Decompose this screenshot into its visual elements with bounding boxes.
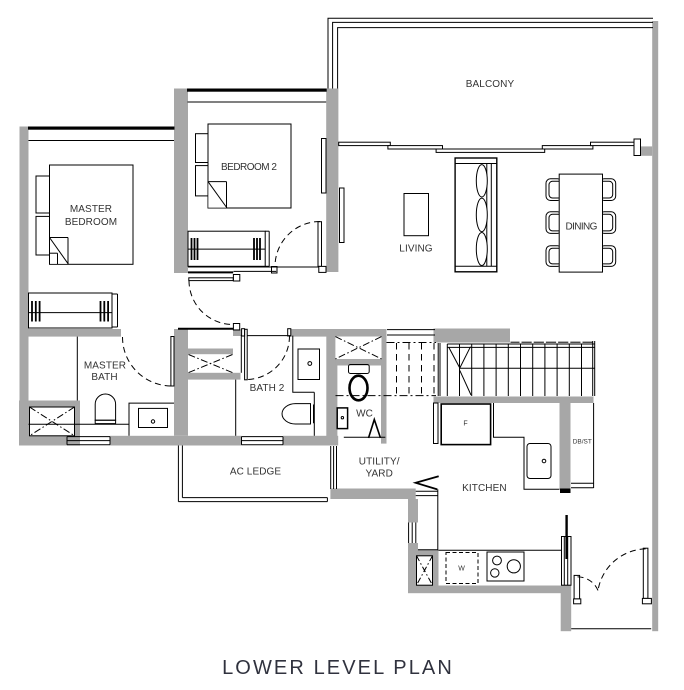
svg-text:UTILITY/: UTILITY/ [359,457,400,468]
svg-text:BALCONY: BALCONY [466,79,515,90]
svg-text:LOWER LEVEL PLAN: LOWER LEVEL PLAN [222,657,454,679]
svg-text:BATH 2: BATH 2 [250,383,285,394]
svg-text:YARD: YARD [365,469,392,480]
svg-text:LIVING: LIVING [399,244,433,255]
svg-text:BATH: BATH [91,372,117,383]
svg-text:DB/ST: DB/ST [573,439,592,446]
svg-text:BEDROOM 2: BEDROOM 2 [221,162,277,173]
svg-text:WC: WC [356,409,373,420]
svg-text:AC LEDGE: AC LEDGE [230,467,282,478]
svg-text:KITCHEN: KITCHEN [462,483,507,494]
svg-text:DINING: DINING [566,222,598,233]
svg-text:MASTER: MASTER [70,204,112,215]
svg-text:F: F [463,420,467,427]
svg-text:BEDROOM: BEDROOM [65,217,117,228]
svg-text:W: W [458,565,465,572]
svg-text:MASTER: MASTER [84,361,126,372]
